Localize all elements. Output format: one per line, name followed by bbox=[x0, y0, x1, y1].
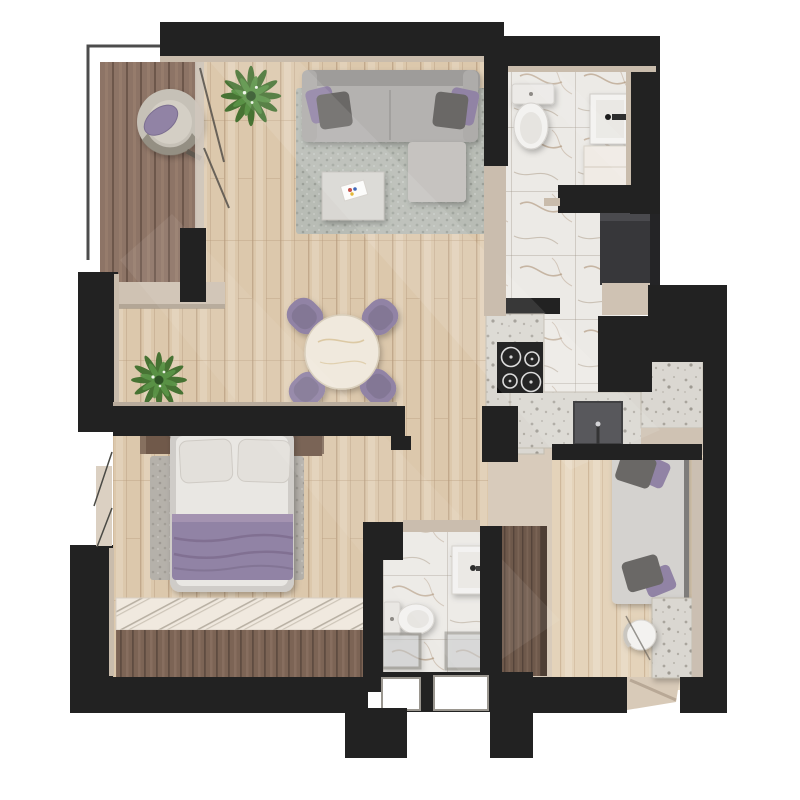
wall-right-block bbox=[648, 285, 727, 362]
wall-right-upper bbox=[630, 72, 660, 214]
floor-plan-render bbox=[0, 0, 800, 800]
shower-glass-panel-left bbox=[382, 634, 420, 668]
window-shower-right bbox=[434, 676, 488, 710]
wall-right-lower bbox=[703, 358, 727, 677]
wall-left-lower-face bbox=[109, 548, 114, 676]
wall-living-east bbox=[484, 36, 508, 166]
sink-faucet-main bbox=[612, 114, 628, 120]
bench-top bbox=[116, 598, 368, 630]
sofa-pillow-gray-right bbox=[432, 91, 469, 130]
wall-bedroom-north bbox=[113, 406, 405, 436]
wall-right-lower-face bbox=[692, 458, 703, 677]
wall-living-east-face bbox=[484, 166, 506, 316]
wall-bathroom-top-face bbox=[492, 66, 656, 72]
window-bench bbox=[116, 598, 368, 677]
wall-bottom-entry-right bbox=[680, 677, 727, 713]
wall-left-upper bbox=[78, 272, 118, 432]
wall-top-face bbox=[160, 56, 490, 62]
wall-bottom-middle bbox=[490, 672, 533, 758]
bathroom-door-jamb bbox=[544, 198, 560, 206]
wall-bottom-entry-left bbox=[530, 677, 627, 713]
toilet-flush-button bbox=[529, 92, 533, 96]
wall-study-north bbox=[552, 444, 702, 460]
window-shower-left bbox=[382, 678, 420, 710]
wall-bottom-bedroom bbox=[83, 677, 368, 713]
wall-shower-room-west bbox=[363, 560, 383, 692]
wall-shower-room-nw bbox=[363, 522, 403, 560]
daybed bbox=[612, 449, 689, 604]
wall-shower-room-east bbox=[480, 526, 502, 676]
wall-bedroom-north-cap bbox=[391, 436, 411, 450]
floor-plan-canvas bbox=[0, 0, 800, 800]
wall-bathroom-south bbox=[558, 185, 633, 213]
bench-front bbox=[116, 630, 368, 677]
wall-kitchen-nook bbox=[598, 316, 652, 392]
bed-pillow-left bbox=[179, 439, 233, 484]
wall-bottom-protrusion bbox=[345, 708, 407, 758]
wardrobe-side bbox=[541, 526, 547, 676]
tall-fridge-unit bbox=[600, 212, 652, 285]
wall-hall-north bbox=[482, 406, 518, 462]
sliding-glass-door-track bbox=[195, 62, 204, 230]
fridge-counter-cap bbox=[602, 283, 650, 315]
daybed-backrest bbox=[684, 452, 689, 604]
wall-shower-room-north-face bbox=[403, 520, 480, 532]
wall-balcony-end bbox=[180, 228, 206, 302]
purple-blanket bbox=[172, 514, 293, 580]
terrazzo-desk bbox=[652, 598, 692, 678]
fridge-side bbox=[650, 212, 660, 287]
bedroom-window bbox=[94, 452, 112, 547]
